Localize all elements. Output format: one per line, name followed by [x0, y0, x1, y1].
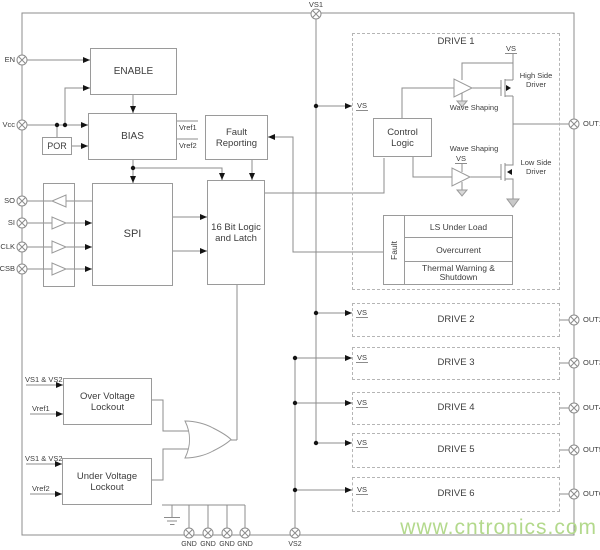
- pin-so: [17, 196, 27, 206]
- pin-si: [17, 218, 27, 228]
- fault-side-cell: Fault: [383, 215, 405, 285]
- pin-out5: [569, 445, 579, 455]
- drive3-title: DRIVE 3: [352, 357, 560, 368]
- fault-row-ls-under-load: LS Under Load: [404, 215, 513, 238]
- fault-row-overcurrent: Overcurrent: [404, 237, 513, 262]
- control-logic-block: Control Logic: [373, 118, 432, 157]
- pin-csb: [17, 264, 27, 274]
- pin-gnd-1: [184, 528, 194, 538]
- uvl-label: Under Voltage: [77, 471, 137, 482]
- pin-label-en: EN: [5, 55, 15, 64]
- pin-vcc: [17, 120, 27, 130]
- pin-gnd-4: [240, 528, 250, 538]
- wave-shaping-label-high: Wave Shaping: [445, 103, 503, 112]
- high-side-driver-line: Driver: [509, 80, 563, 89]
- pin-out1: [569, 119, 579, 129]
- pin-label-vcc: Vcc: [2, 120, 15, 129]
- spi-block: SPI: [92, 183, 173, 286]
- fault-row-thermal: Thermal Warning & Shutdown: [404, 261, 513, 285]
- pin-label-out5: OUT5: [583, 445, 600, 454]
- ovl-vs-input-label: VS1 & VS2: [25, 375, 63, 384]
- pin-label-out4: OUT4: [583, 403, 600, 412]
- control-logic-label: Control: [387, 127, 418, 138]
- ovl-vref1-input-label: Vref1: [32, 404, 50, 413]
- uvl-vref2-input-label: Vref2: [32, 484, 50, 493]
- bias-block: BIAS: [88, 113, 177, 160]
- logic-latch-block: 16 Bit Logic and Latch: [207, 180, 265, 285]
- drive2-title: DRIVE 2: [352, 314, 560, 325]
- pin-label-gnd: GND: [234, 540, 256, 549]
- over-voltage-lockout-block: Over Voltage Lockout: [63, 378, 152, 425]
- logic-latch-label: 16 Bit Logic: [211, 222, 261, 233]
- bias-label: BIAS: [121, 131, 144, 142]
- pin-label-out6: OUT6: [583, 489, 600, 498]
- fault-row-label: Overcurrent: [436, 245, 481, 255]
- pin-gnd-3: [222, 528, 232, 538]
- drive1-title: DRIVE 1: [352, 36, 560, 47]
- enable-label: ENABLE: [114, 66, 153, 77]
- pin-label-out2: OUT2: [583, 315, 600, 324]
- pin-out2: [569, 315, 579, 325]
- pin-sclk: [17, 242, 27, 252]
- high-side-driver-label: High Side Driver: [509, 71, 563, 89]
- wave-shaping-label-low: Wave Shaping: [445, 144, 503, 153]
- pin-label-out3: OUT3: [583, 358, 600, 367]
- vref1-output-label: Vref1: [179, 123, 197, 132]
- high-side-driver-line: High Side: [509, 71, 563, 80]
- por-label: POR: [47, 141, 67, 152]
- fault-row-label: LS Under Load: [430, 222, 487, 232]
- fault-row-label: Shutdown: [440, 273, 478, 283]
- input-buffer-box: [43, 183, 75, 287]
- under-voltage-lockout-block: Under Voltage Lockout: [62, 458, 152, 505]
- pin-label-vs2: VS2: [284, 540, 306, 549]
- vs-label-drive5: VS: [356, 438, 368, 448]
- earth-ground-icon: [164, 505, 180, 525]
- pin-label-vs1: VS1: [305, 0, 327, 9]
- por-block: POR: [42, 137, 72, 155]
- watermark: www.cntronics.com: [400, 516, 597, 540]
- fault-vertical-label: Fault: [389, 241, 400, 260]
- output-stubs: [560, 320, 569, 494]
- ovl-label: Lockout: [91, 402, 124, 413]
- control-logic-label: Logic: [391, 138, 414, 149]
- junction-dots: [55, 104, 318, 492]
- vs-label-drive6: VS: [356, 485, 368, 495]
- low-side-driver-line: Low Side: [509, 158, 563, 167]
- drive5-title: DRIVE 5: [352, 444, 560, 455]
- low-side-driver-label: Low Side Driver: [509, 158, 563, 176]
- drive6-title: DRIVE 6: [352, 488, 560, 499]
- drive4-title: DRIVE 4: [352, 402, 560, 413]
- pin-label-si: SI: [8, 218, 15, 227]
- ovl-label: Over Voltage: [80, 391, 135, 402]
- logic-latch-label: and Latch: [215, 233, 257, 244]
- fault-reporting-block: Fault Reporting: [205, 115, 268, 160]
- low-side-driver-line: Driver: [509, 167, 563, 176]
- pin-vs2: [290, 528, 300, 538]
- vs-label-drive2: VS: [356, 308, 368, 318]
- fault-reporting-label: Reporting: [216, 138, 257, 149]
- uvl-vs-input-label: VS1 & VS2: [25, 454, 63, 463]
- vs-label-high-side: VS: [505, 44, 517, 54]
- vs1-bus: [316, 19, 352, 443]
- block-diagram: ENABLE BIAS POR Fault Reporting SPI 16 B…: [0, 0, 600, 550]
- pin-en: [17, 55, 27, 65]
- fault-reporting-label: Fault: [226, 127, 247, 138]
- vs-label-drive4: VS: [356, 398, 368, 408]
- pin-label-csb: CSB: [0, 264, 15, 273]
- vref2-output-label: Vref2: [179, 141, 197, 150]
- or-gate: [185, 421, 231, 458]
- pin-out4: [569, 403, 579, 413]
- pin-label-sclk: SCLK: [0, 242, 15, 251]
- pin-out3: [569, 358, 579, 368]
- pin-vs1: [311, 9, 321, 19]
- pin-gnd-2: [203, 528, 213, 538]
- pin-label-out1: OUT1: [583, 119, 600, 128]
- spi-label: SPI: [124, 229, 142, 240]
- pin-label-so: SO: [4, 196, 15, 205]
- vs-label-drive1: VS: [356, 101, 368, 111]
- enable-block: ENABLE: [90, 48, 177, 95]
- vs-label-drive3: VS: [356, 353, 368, 363]
- pin-out6: [569, 489, 579, 499]
- uvl-label: Lockout: [90, 482, 123, 493]
- vs-label-low-side: VS: [455, 154, 467, 164]
